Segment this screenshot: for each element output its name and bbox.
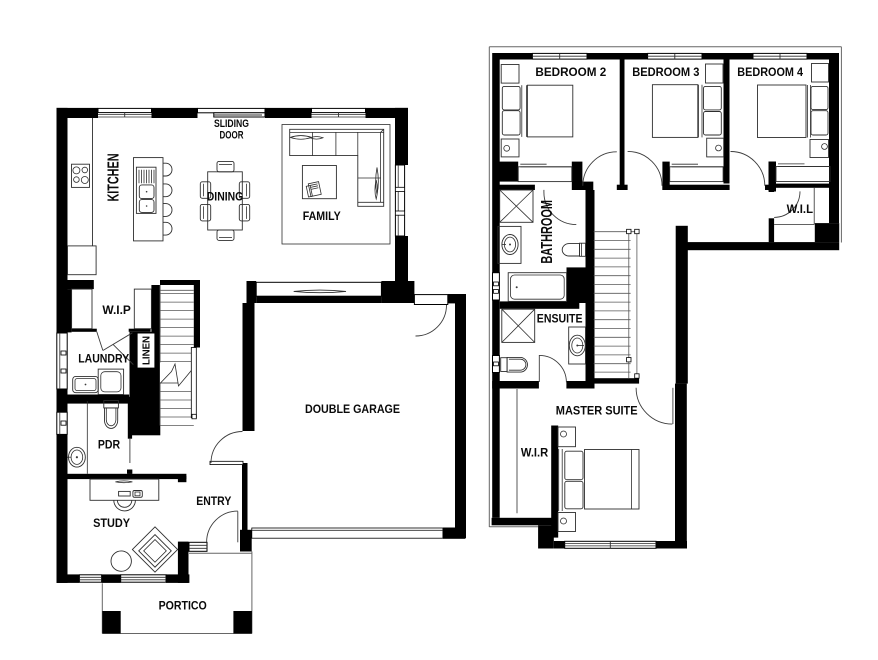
svg-text:DOOR: DOOR <box>220 130 244 142</box>
svg-text:LINEN: LINEN <box>142 336 153 365</box>
svg-text:STUDY: STUDY <box>93 516 130 530</box>
svg-text:W.I.R: W.I.R <box>521 445 548 459</box>
svg-text:W.I.P: W.I.P <box>102 303 130 317</box>
svg-text:PDR: PDR <box>98 437 120 451</box>
svg-text:BATHROOM: BATHROOM <box>539 200 556 264</box>
svg-text:ENTRY: ENTRY <box>196 494 231 508</box>
svg-text:FAMILY: FAMILY <box>303 209 341 223</box>
svg-text:BEDROOM 3: BEDROOM 3 <box>632 65 700 79</box>
svg-text:DOUBLE GARAGE: DOUBLE GARAGE <box>305 402 400 416</box>
svg-text:PORTICO: PORTICO <box>159 599 207 613</box>
svg-text:W.I.L: W.I.L <box>787 202 814 216</box>
svg-text:ENSUITE: ENSUITE <box>537 311 583 325</box>
svg-text:DINING: DINING <box>207 190 243 204</box>
svg-text:BEDROOM 4: BEDROOM 4 <box>737 65 803 79</box>
svg-text:SLIDING: SLIDING <box>214 118 249 130</box>
svg-text:BEDROOM 2: BEDROOM 2 <box>535 65 606 79</box>
svg-text:MASTER SUITE: MASTER SUITE <box>556 404 638 418</box>
svg-text:KITCHEN: KITCHEN <box>105 154 122 202</box>
svg-text:LAUNDRY: LAUNDRY <box>78 352 129 366</box>
